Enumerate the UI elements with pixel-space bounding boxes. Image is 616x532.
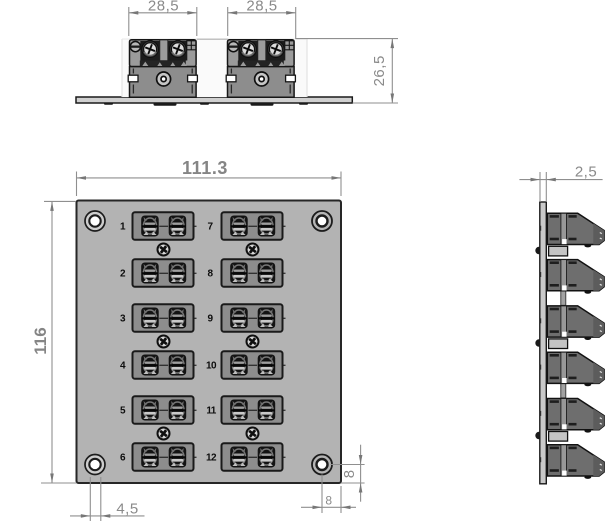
svg-text:28,5: 28,5: [148, 0, 179, 15]
svg-text:8: 8: [341, 469, 358, 478]
svg-text:116: 116: [31, 327, 50, 354]
svg-text:2,5: 2,5: [575, 164, 597, 181]
svg-text:28,5: 28,5: [246, 0, 277, 15]
svg-text:4,5: 4,5: [116, 501, 138, 518]
svg-text:12: 12: [206, 453, 217, 464]
svg-text:10: 10: [206, 361, 217, 372]
svg-text:11: 11: [206, 406, 216, 417]
svg-text:26,5: 26,5: [371, 55, 388, 86]
svg-text:111.3: 111.3: [182, 158, 228, 178]
svg-text:8: 8: [325, 493, 332, 507]
